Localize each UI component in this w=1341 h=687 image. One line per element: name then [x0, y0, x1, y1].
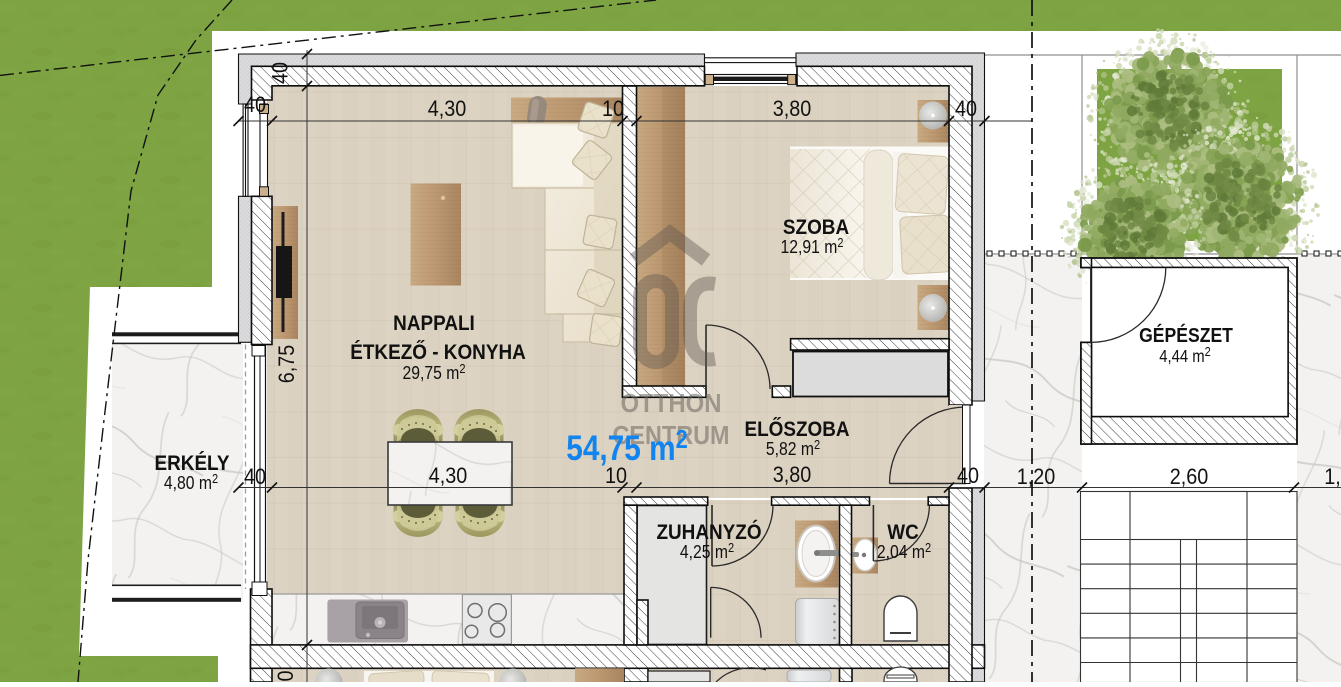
svg-text:40: 40	[268, 62, 292, 84]
svg-text:5,82 m2: 5,82 m2	[766, 437, 820, 459]
svg-text:40: 40	[244, 93, 266, 117]
svg-text:NAPPALI: NAPPALI	[393, 312, 475, 335]
svg-text:4,30: 4,30	[429, 464, 468, 488]
svg-text:1,2: 1,2	[1324, 465, 1341, 489]
svg-text:4,25 m2: 4,25 m2	[680, 540, 734, 562]
svg-text:2,60: 2,60	[1170, 465, 1209, 489]
svg-text:12,91 m2: 12,91 m2	[781, 235, 844, 257]
svg-text:40: 40	[955, 97, 977, 121]
svg-text:40: 40	[244, 465, 266, 489]
svg-text:40: 40	[957, 464, 979, 488]
svg-text:GÉPÉSZET: GÉPÉSZET	[1139, 324, 1233, 346]
svg-text:4,80 m2: 4,80 m2	[164, 471, 218, 493]
svg-text:29,75 m2: 29,75 m2	[403, 361, 466, 383]
svg-text:1,20: 1,20	[1017, 465, 1056, 489]
svg-text:0: 0	[274, 670, 298, 681]
svg-text:54,75 m2: 54,75 m2	[566, 425, 688, 467]
svg-text:4,30: 4,30	[428, 97, 467, 121]
svg-text:3,80: 3,80	[773, 463, 812, 487]
svg-text:3,80: 3,80	[773, 97, 812, 121]
svg-text:6,75: 6,75	[275, 345, 299, 384]
svg-text:10: 10	[602, 97, 624, 121]
svg-text:ÉTKEZŐ - KONYHA: ÉTKEZŐ - KONYHA	[350, 340, 526, 364]
svg-text:OTTHON: OTTHON	[621, 389, 722, 418]
svg-text:2,04 m2: 2,04 m2	[877, 540, 931, 562]
svg-text:4,44 m2: 4,44 m2	[1159, 344, 1211, 366]
